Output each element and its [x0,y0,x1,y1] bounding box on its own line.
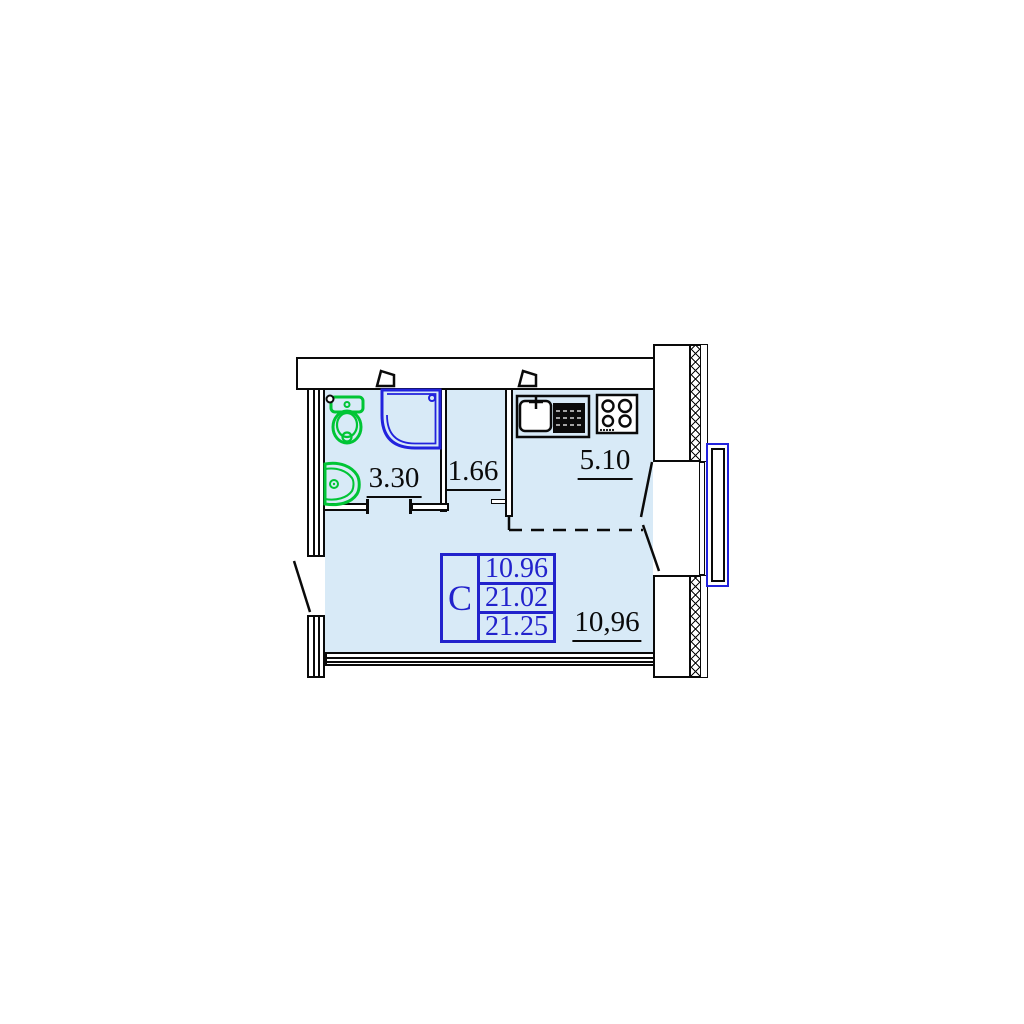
window-line [327,657,653,659]
hallway-area-label: 1.66 [446,457,501,491]
unit-type-cell: С [440,553,480,643]
bathroom-area-label: 3.30 [367,464,422,498]
wall-bathroom-bottom-left [323,503,369,511]
hallway-opening-jamb [491,499,506,504]
wall-right-upper [653,344,691,462]
left-wall-panel-lower [307,615,325,678]
wall-kitchen-left [505,388,513,517]
window-line [327,661,653,663]
left-wall-panel-upper [307,388,325,557]
panel-line [313,390,315,555]
wall-bathroom-bottom-right [411,503,449,511]
panel-line [313,617,315,676]
bathroom-door-jamb-left [366,499,369,514]
wall-right-lower [653,575,691,678]
bathroom-door-jamb-right [409,499,412,514]
balcony-slab [711,448,725,582]
panel-line [318,617,320,676]
wall-bathroom-right [440,388,447,512]
wall-top [296,357,657,390]
living-room-area-label: 10,96 [572,608,641,642]
living-area-cell: 10.96 [477,553,556,585]
kitchen-area-label: 5.10 [578,446,633,480]
unit-area-values: 10.96 21.02 21.25 [477,553,556,643]
entrance-door-swing [294,561,310,612]
total-area-with-balcony-cell: 21.25 [477,611,556,643]
floor-plan-canvas: 3.30 1.66 5.10 10,96 С 10.96 21.02 21.25 [0,0,1024,1024]
panel-line [318,390,320,555]
unit-area-table: С 10.96 21.02 21.25 [440,553,556,643]
bottom-window-band [325,652,655,666]
balcony-door-frame [699,462,705,575]
total-area-cell: 21.02 [477,582,556,614]
wall-right-lower-cladding [700,575,708,678]
